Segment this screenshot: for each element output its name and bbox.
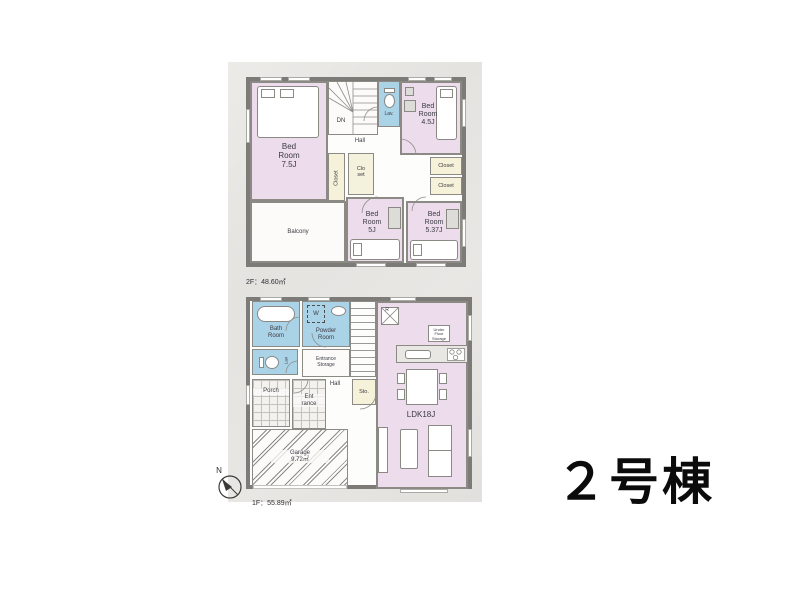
room-closet-2f-left: Closet bbox=[328, 153, 345, 201]
low-table-icon bbox=[400, 429, 418, 469]
sofa-icon bbox=[428, 425, 452, 477]
desk-icon bbox=[388, 207, 401, 229]
room-closet-2f-small: Clo set bbox=[348, 153, 374, 195]
compass-icon: N bbox=[212, 466, 246, 502]
room-label: Garage 9.72㎡ bbox=[271, 450, 329, 463]
window bbox=[246, 109, 250, 143]
room-porch: Porch bbox=[252, 379, 290, 427]
refrigerator-icon: R bbox=[381, 307, 399, 325]
window bbox=[308, 297, 330, 301]
room-label: Bed Room 5J bbox=[352, 211, 392, 234]
room-closet-2f-right-1: Closet bbox=[430, 157, 462, 175]
floorplan-2f: Bed Room 7.5J Closet DN bbox=[246, 77, 466, 267]
tv-board-icon bbox=[378, 427, 388, 473]
room-powder-room: W Powder Room bbox=[302, 301, 350, 347]
room-label: Powder Room bbox=[303, 328, 349, 341]
room-label: Lav. bbox=[379, 112, 399, 118]
staircase-up bbox=[350, 301, 376, 377]
window bbox=[356, 263, 386, 267]
double-bed-icon bbox=[257, 86, 319, 138]
window bbox=[434, 77, 452, 81]
room-lavatory-1f: Lav bbox=[252, 349, 298, 375]
single-bed-icon bbox=[350, 239, 400, 260]
window bbox=[390, 297, 416, 301]
floor1-area-text: 1F：55.89㎡ bbox=[252, 490, 292, 509]
stove-icon bbox=[447, 348, 465, 361]
pillow-icon bbox=[413, 244, 422, 256]
room-label: LDK18J bbox=[396, 411, 446, 420]
pillow-icon bbox=[261, 89, 275, 98]
desk-icon bbox=[446, 209, 459, 229]
chair-icon bbox=[439, 373, 447, 384]
room-label: Entrance Storage bbox=[303, 357, 349, 368]
chair-icon bbox=[405, 87, 414, 96]
window bbox=[462, 219, 466, 247]
toilet-icon bbox=[259, 357, 264, 368]
stairs-dn-label: DN bbox=[331, 118, 351, 125]
room-label: Porch bbox=[253, 388, 289, 395]
room-entrance: Ent rance bbox=[292, 379, 326, 429]
fridge-label: R bbox=[383, 308, 391, 314]
hall-2f-label: Hall bbox=[346, 138, 374, 145]
room-bedroom-5j: Bed Room 5J bbox=[346, 197, 404, 263]
room-bathroom: Bath Room bbox=[252, 301, 300, 347]
sink-icon bbox=[331, 306, 346, 316]
room-label: Closet bbox=[333, 162, 339, 195]
window bbox=[260, 77, 282, 81]
room-label: Clo set bbox=[349, 166, 373, 178]
window bbox=[462, 99, 466, 127]
building-title: ２号棟 bbox=[556, 442, 715, 514]
under-floor-storage: Under Floor Storage bbox=[428, 325, 450, 342]
garage-door-opening bbox=[253, 485, 347, 489]
room-label: Lav bbox=[283, 354, 288, 368]
window bbox=[400, 489, 448, 493]
room-label: Bed Room 4.5J bbox=[412, 103, 444, 126]
toilet-icon bbox=[384, 94, 395, 108]
room-balcony: Balcony bbox=[250, 201, 346, 263]
compass-north-label: N bbox=[214, 467, 224, 476]
room-label: Sto. bbox=[353, 389, 375, 395]
room-garage: Garage 9.72㎡ bbox=[252, 429, 348, 489]
chair-icon bbox=[397, 389, 405, 400]
window bbox=[288, 77, 310, 81]
room-lavatory-2f: Lav. bbox=[378, 81, 400, 127]
room-closet-2f-right-2: Closet bbox=[430, 177, 462, 195]
pillow-icon bbox=[440, 89, 453, 98]
chair-icon bbox=[439, 389, 447, 400]
room-label: Under Floor Storage bbox=[429, 328, 449, 341]
room-entrance-storage: Entrance Storage bbox=[302, 349, 350, 377]
room-storage: Sto. bbox=[352, 379, 376, 405]
sofa-divider bbox=[429, 450, 451, 451]
room-label: Bed Room 7.5J bbox=[252, 143, 326, 170]
staircase-down: DN bbox=[328, 81, 378, 135]
window bbox=[246, 385, 250, 405]
dining-table-icon bbox=[406, 369, 438, 405]
washing-machine-icon: W bbox=[307, 305, 325, 323]
bathtub-icon bbox=[257, 306, 295, 322]
toilet-icon bbox=[384, 88, 395, 93]
room-bedroom-5-37j: Bed Room 5.37J bbox=[406, 201, 462, 263]
floor1-area-line: 1F：55.89㎡ bbox=[252, 500, 292, 507]
room-bedroom-4-5j: Bed Room 4.5J bbox=[400, 81, 462, 155]
chair-icon bbox=[397, 373, 405, 384]
window bbox=[260, 297, 282, 301]
toilet-icon bbox=[265, 356, 279, 369]
room-bedroom-7-5j: Bed Room 7.5J bbox=[250, 81, 328, 201]
pillow-icon bbox=[280, 89, 294, 98]
floor2-area-line1: 2F：48.60㎡ bbox=[246, 279, 286, 286]
single-bed-icon bbox=[410, 240, 458, 260]
room-ldk: R Under Floor Storage bbox=[376, 301, 468, 489]
washer-label: W bbox=[308, 311, 324, 318]
stair-treads-icon bbox=[329, 82, 377, 134]
room-label: Balcony bbox=[252, 229, 344, 236]
window bbox=[468, 429, 472, 457]
floorplan-page: Bed Room 7.5J Closet DN bbox=[0, 0, 800, 600]
room-label: Ent rance bbox=[293, 394, 325, 407]
pillow-icon bbox=[353, 243, 362, 256]
window bbox=[416, 263, 446, 267]
room-label: Bath Room bbox=[253, 326, 299, 339]
floorplan-1f: Bath Room W Powder Room Lav UP Entrance … bbox=[246, 297, 472, 489]
room-label: Closet bbox=[431, 183, 461, 189]
window bbox=[408, 77, 426, 81]
kitchen-counter bbox=[396, 345, 468, 363]
window bbox=[468, 315, 472, 341]
kitchen-sink-icon bbox=[405, 350, 431, 359]
room-label: Closet bbox=[431, 163, 461, 169]
